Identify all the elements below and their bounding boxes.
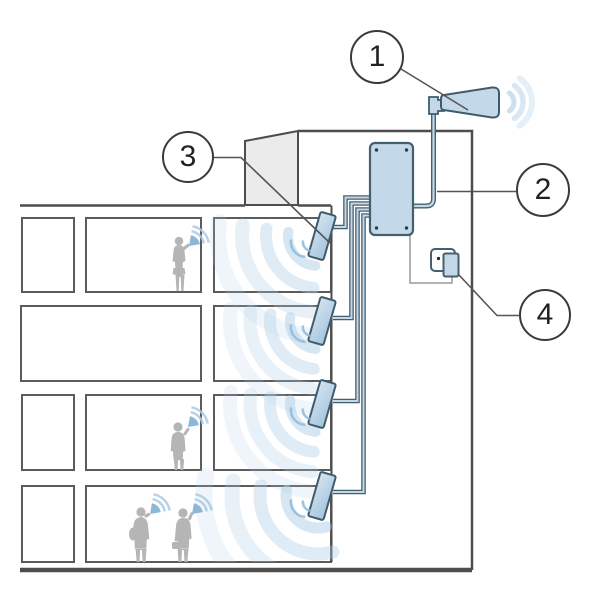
screw-icon xyxy=(405,148,408,151)
coax-cable-bundle xyxy=(333,198,374,493)
room xyxy=(22,486,74,562)
callout-1: 1 xyxy=(350,30,404,84)
screw-icon xyxy=(405,226,408,229)
callout-2: 2 xyxy=(516,163,570,217)
power-plug xyxy=(444,254,459,277)
callout-2-label: 2 xyxy=(535,175,552,205)
outdoor-antenna xyxy=(429,78,532,126)
screw-icon xyxy=(375,148,378,151)
room xyxy=(22,395,74,470)
diagram-canvas: 1 2 3 4 xyxy=(0,0,600,600)
mast-coax-cable xyxy=(412,106,434,206)
callout-1-label: 1 xyxy=(369,42,386,72)
room xyxy=(86,395,201,470)
callout-3: 3 xyxy=(162,131,214,183)
callout-3-label: 3 xyxy=(180,142,197,172)
room xyxy=(21,306,201,381)
building-cutaway-diagram xyxy=(0,0,600,600)
screw-icon xyxy=(375,226,378,229)
room xyxy=(22,218,74,292)
amplifier-unit xyxy=(370,143,413,235)
callout-4-label: 4 xyxy=(537,300,554,330)
callout-4: 4 xyxy=(519,289,571,341)
outdoor-signal-waves xyxy=(509,78,532,126)
leader-line-4 xyxy=(459,275,519,316)
